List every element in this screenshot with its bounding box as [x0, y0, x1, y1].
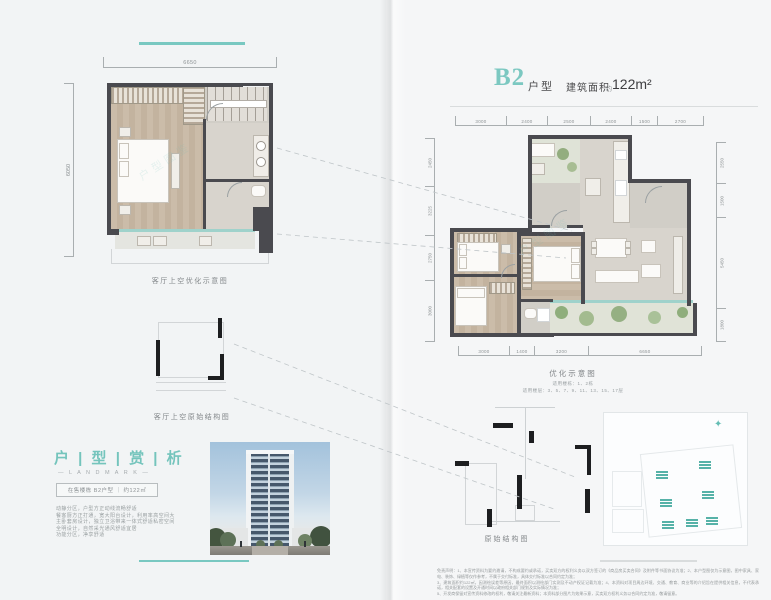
walkway — [252, 546, 288, 555]
cushion — [153, 236, 167, 246]
cushion — [199, 236, 212, 246]
chair — [591, 241, 597, 248]
wall-segment — [628, 179, 691, 183]
building-footprint — [702, 491, 714, 499]
pillow — [119, 143, 129, 159]
structure-wall — [156, 340, 160, 376]
plant — [611, 306, 627, 322]
header-rule — [450, 106, 758, 107]
building-footprint — [699, 461, 711, 469]
structure-wall — [529, 431, 534, 443]
balcony-outline — [156, 382, 226, 391]
disclaimer-line: 3、建筑面积约122㎡，因测绘误差等原因，最终面积以测绘部门实测及不动产权证记载… — [437, 580, 759, 592]
disclaimer: 免责声明：1、本宣传资料为要约邀请，不构成要约或承诺，买卖双方的权利义务以双方签… — [437, 568, 759, 597]
dim-segment: 1400 — [509, 346, 534, 356]
bathtub — [531, 143, 555, 157]
main-dim-left: 2450 3225 2750 3000 — [425, 138, 435, 342]
pillow — [571, 264, 580, 279]
pillow — [571, 248, 580, 263]
building-footprint — [686, 519, 698, 527]
kitchen-sink — [615, 150, 627, 160]
wardrobe — [489, 282, 515, 294]
wall-block — [253, 207, 273, 231]
plant — [567, 162, 577, 172]
outline-line — [490, 521, 560, 522]
wardrobe — [111, 87, 185, 104]
wall-segment — [107, 83, 243, 87]
dim-segment: 2450 — [425, 138, 435, 186]
main-dim-bottom: 3000 1400 3200 6650 — [458, 346, 702, 356]
fridge — [585, 178, 601, 196]
tower — [246, 450, 294, 548]
unit-code: B2 — [494, 64, 525, 92]
balcony-floor — [115, 232, 255, 249]
structure-wall — [517, 475, 522, 509]
outline-room — [158, 322, 224, 378]
building-footprint — [706, 517, 718, 525]
plant — [579, 311, 594, 326]
page-gap-shadow — [380, 0, 406, 600]
dim-segment: 1800 — [716, 308, 726, 342]
outline-room — [465, 463, 497, 525]
nightstand — [501, 244, 511, 254]
compass-icon: ✦ — [714, 419, 722, 430]
chair — [591, 248, 597, 255]
structure-wall — [585, 489, 590, 513]
cushion — [137, 236, 151, 246]
interior-wall — [581, 232, 585, 304]
detail-floor-plan: 户型图鉴 — [107, 83, 273, 255]
building-footprint — [662, 521, 674, 529]
washbasin — [531, 163, 545, 175]
wall-segment — [687, 179, 691, 306]
detail-plan-caption: 客厅上空优化示意图 — [110, 276, 270, 286]
tower-glass — [251, 454, 289, 546]
left-page: 6650 6050 — [0, 0, 386, 600]
dim-label: 6650 — [104, 60, 276, 66]
wall-segment — [628, 135, 632, 183]
building-footprint — [660, 499, 672, 507]
structure-wall — [587, 445, 591, 475]
dim-segment: 3000 — [425, 280, 435, 342]
armchair — [641, 240, 656, 253]
wall-segment — [693, 303, 697, 336]
main-plan-note1: 适用楼栋：1、2栋 — [473, 381, 673, 387]
dim-segment: 6650 — [588, 346, 702, 356]
pillow — [457, 288, 485, 298]
structure-wall — [455, 461, 469, 466]
wall-segment — [450, 228, 454, 337]
structure-wall — [493, 423, 513, 428]
tower-mullion — [268, 454, 270, 546]
disclaimer-line: 免责声明：1、本宣传资料为要约邀请，不构成要约或承诺，买卖双方的权利义务以双方签… — [437, 568, 759, 580]
dim-segment: 3000 — [458, 346, 509, 356]
balcony-glass — [550, 300, 693, 303]
disclaimer-line: 5、开发商保留对宣传资料修改的权利，敬请关注最新资料；本资料部分图片为效果示意，… — [437, 591, 759, 597]
wall-segment — [528, 135, 532, 183]
wall-segment — [528, 135, 632, 139]
sofa — [595, 270, 639, 283]
original-plan-caption: 原始结构图 — [447, 534, 567, 544]
pillow — [119, 161, 129, 177]
interior-wall — [203, 119, 206, 229]
dim-segment: 3225 — [425, 186, 435, 235]
dim-segment: 3200 — [534, 346, 588, 356]
dim-segment: 6050 — [64, 83, 74, 257]
wall-segment — [450, 333, 554, 337]
tree — [310, 526, 330, 548]
plant — [557, 148, 569, 160]
dim-segment: 6650 — [103, 57, 277, 68]
shower — [537, 308, 550, 322]
toilet — [524, 308, 537, 319]
person — [304, 541, 306, 547]
analysis-text: 动静分区，户型方正动线流畅舒适 餐客厨方正打通，宽大阳台设计，利用率高空间大 主… — [56, 506, 196, 539]
chair — [625, 248, 631, 255]
structure-wall — [208, 376, 224, 380]
dining-table — [595, 238, 627, 258]
lower-floor-outline — [111, 249, 269, 264]
tower-crown — [246, 450, 294, 454]
original-structure-outline — [455, 405, 595, 531]
main-plan-caption: 优化示意图 — [473, 368, 673, 379]
structure-wall — [487, 509, 492, 527]
chair — [625, 241, 631, 248]
main-plan-note2: 适用楼层：3、5、7、9、11、13、15、17层 — [473, 388, 673, 394]
dim-segment: 1500 — [716, 183, 726, 217]
analysis-line: 功能分区，净享舒适 — [56, 532, 196, 539]
main-dim-right: 2550 1500 5450 1800 — [716, 142, 726, 342]
pillow — [459, 257, 467, 269]
toilet — [251, 185, 266, 197]
area-label: 建筑面积 — [566, 79, 610, 94]
analysis-subtitle: — L A N D M A R K — — [58, 470, 150, 476]
wall-pier — [259, 229, 273, 253]
dim-segment: 5450 — [716, 217, 726, 308]
site-block-outline — [612, 471, 642, 507]
void-structure-outline — [154, 316, 234, 396]
wardrobe — [183, 87, 205, 125]
wall-segment — [107, 83, 111, 231]
dim-segment: 2750 — [425, 235, 435, 280]
person — [240, 541, 242, 547]
top-accent-rule — [139, 42, 245, 45]
nightstand — [119, 127, 131, 137]
analysis-title: 户 | 型 | 赏 | 析 — [54, 447, 184, 468]
dim-label: 6050 — [66, 164, 72, 176]
analysis-line: 动静分区，户型方正动线流畅舒适 — [56, 506, 196, 513]
sink — [256, 157, 266, 167]
building-footprint — [656, 471, 668, 479]
site-plan: ✦ — [603, 412, 748, 546]
pillow — [459, 244, 467, 256]
plant — [677, 307, 688, 318]
plant — [555, 306, 568, 319]
detail-plan-dim-top: 6650 — [103, 57, 277, 68]
building-photo — [210, 442, 330, 555]
divider-rule — [600, 560, 697, 562]
main-floor-plan: 户型图鉴 — [445, 118, 701, 344]
bottom-accent-rule — [139, 560, 249, 562]
tv-cabinet — [673, 236, 683, 294]
dim-segment: 2550 — [716, 142, 726, 183]
sale-tag: 在售楼栋 B2户型 ｜ 约122㎡ — [56, 483, 158, 497]
analysis-line: 主卧套房设计，独立卫浴带来一体式舒适私密空间 — [56, 519, 196, 526]
site-block-outline — [612, 509, 644, 533]
sink — [256, 141, 266, 151]
wall-pier — [107, 229, 119, 235]
nightstand — [119, 205, 131, 215]
plant — [648, 311, 661, 324]
interior-wall — [521, 299, 553, 302]
structure-wall — [218, 318, 222, 338]
detail-plan-dim-left: 6050 — [64, 83, 74, 257]
outline-line — [525, 407, 526, 479]
coffee-table — [641, 264, 661, 278]
outline-plan-caption: 客厅上空原始结构图 — [112, 412, 272, 422]
balcony-wall — [550, 333, 697, 336]
unit-type-label: 户型 — [528, 78, 554, 94]
wall-segment — [528, 180, 532, 228]
stove — [615, 180, 627, 196]
area-value: 122m² — [612, 76, 652, 92]
